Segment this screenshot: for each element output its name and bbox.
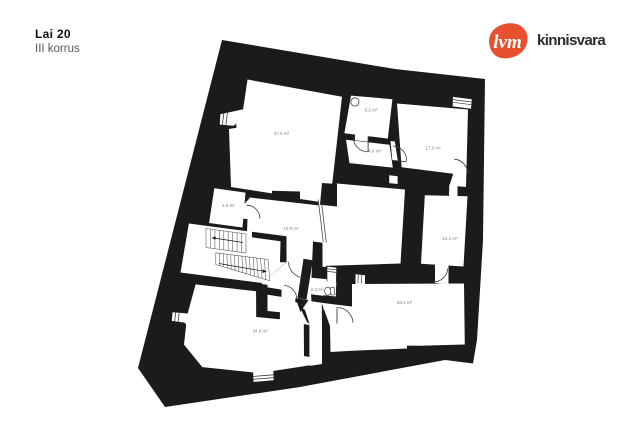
svg-text:4.6 m²: 4.6 m² xyxy=(368,149,381,154)
svg-text:34.9 m²: 34.9 m² xyxy=(252,329,268,334)
svg-text:12.1 m²: 12.1 m² xyxy=(442,236,458,241)
svg-text:37.5 m²: 37.5 m² xyxy=(274,131,290,136)
svg-text:6.2 m²: 6.2 m² xyxy=(365,108,378,113)
svg-text:2.3 m²: 2.3 m² xyxy=(311,287,324,292)
svg-text:28.2 m²: 28.2 m² xyxy=(397,300,413,305)
svg-text:4.0 m²: 4.0 m² xyxy=(222,203,235,208)
svg-text:17.3 m²: 17.3 m² xyxy=(425,146,441,151)
svg-text:10.8 m²: 10.8 m² xyxy=(283,226,299,231)
